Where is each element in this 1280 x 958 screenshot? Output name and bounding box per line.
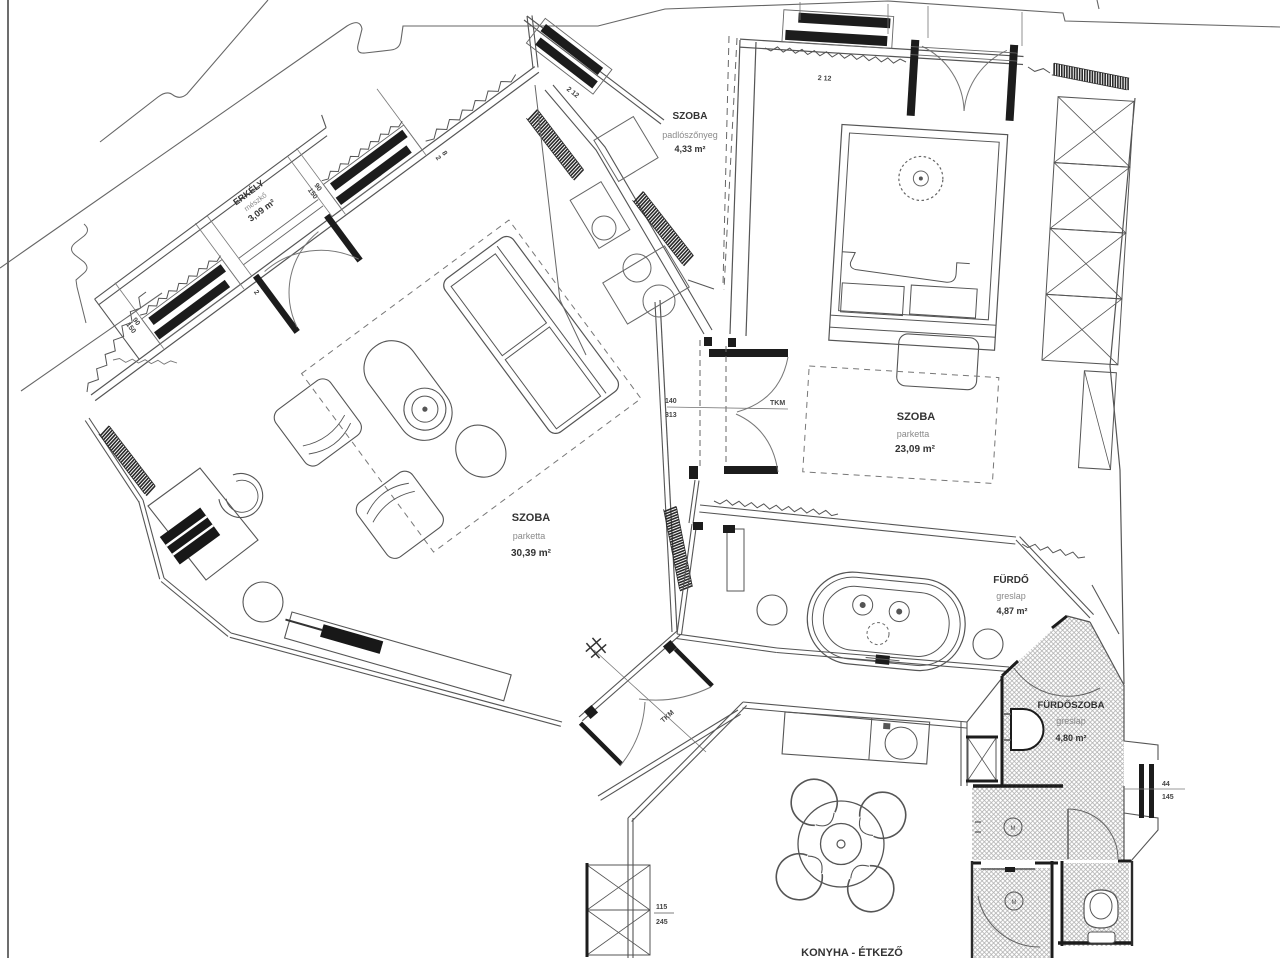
svg-text:SZOBA: SZOBA [897, 411, 936, 423]
svg-text:TKM: TKM [770, 400, 785, 407]
svg-text:44: 44 [1162, 781, 1170, 788]
svg-text:23,09 m²: 23,09 m² [895, 444, 936, 455]
svg-text:4,33 m²: 4,33 m² [674, 144, 705, 154]
svg-text:KONYHA - ÉTKEZŐ: KONYHA - ÉTKEZŐ [801, 946, 903, 958]
svg-text:2 12: 2 12 [818, 75, 832, 83]
svg-text:SZOBA: SZOBA [512, 512, 551, 524]
svg-text:parketta: parketta [897, 429, 930, 439]
svg-text:4,80 m²: 4,80 m² [1055, 733, 1086, 743]
svg-text:145: 145 [1162, 794, 1174, 801]
svg-text:greslap: greslap [996, 591, 1026, 601]
svg-text:245: 245 [656, 919, 668, 926]
svg-text:M: M [1011, 826, 1016, 832]
svg-text:313: 313 [665, 412, 677, 419]
svg-text:115: 115 [656, 904, 667, 911]
svg-text:SZOBA: SZOBA [673, 111, 708, 122]
svg-text:4,87 m²: 4,87 m² [996, 606, 1027, 616]
svg-text:FÜRDŐSZOBA: FÜRDŐSZOBA [1037, 699, 1104, 711]
svg-text:140: 140 [665, 398, 677, 405]
svg-text:greslap: greslap [1056, 716, 1086, 726]
svg-text:parketta: parketta [513, 531, 546, 541]
svg-text:M: M [1012, 900, 1017, 906]
svg-text:FÜRDŐ: FÜRDŐ [993, 573, 1029, 586]
svg-text:30,39 m²: 30,39 m² [511, 548, 552, 559]
svg-text:padlószőnyeg: padlószőnyeg [662, 130, 718, 140]
